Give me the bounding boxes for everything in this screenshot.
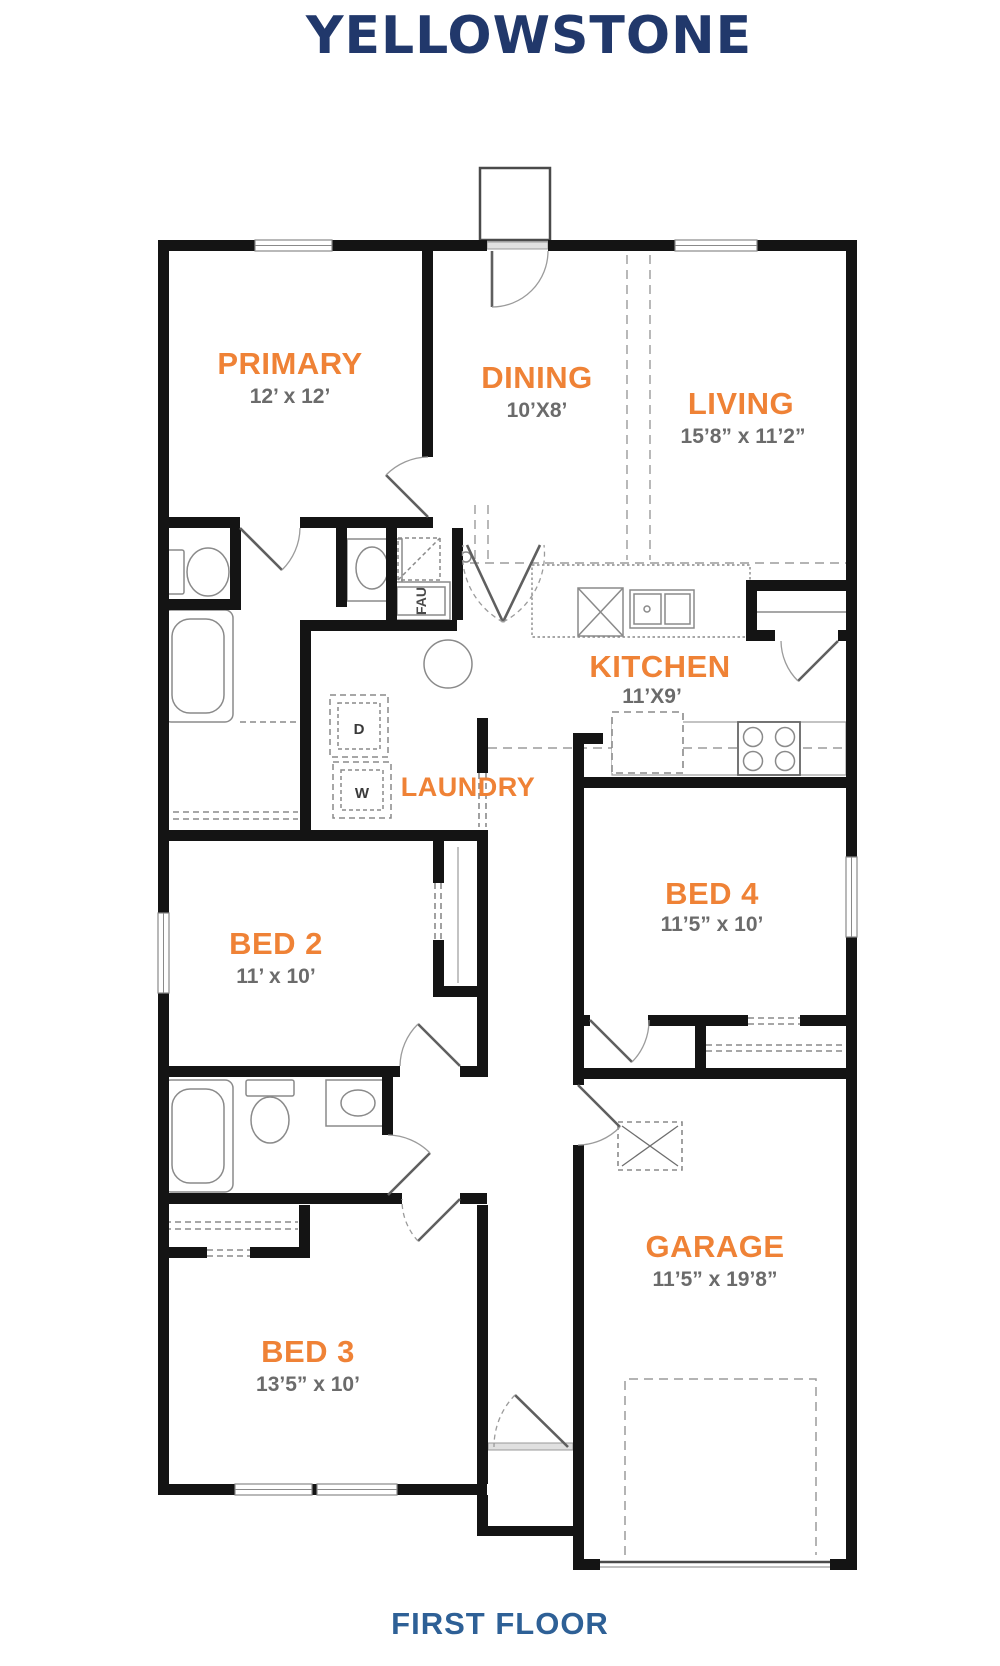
bath2-tub-icon [163,1080,233,1192]
primary-window [255,240,332,251]
bed2-door [400,1024,460,1066]
fau-label: FAU [413,587,429,615]
kitchen-counter-stove-fridge [612,712,846,775]
bath2-toilet-icon [246,1080,294,1143]
kitchen-island-sink-icon [532,565,750,637]
svg-text:11’X9’: 11’X9’ [622,685,682,708]
bed4-door [590,1020,649,1062]
svg-text:PRIMARY: PRIMARY [217,346,362,381]
bed2-closet-slider [435,883,441,940]
svg-text:11’5” x 19’8”: 11’5” x 19’8” [653,1268,778,1291]
svg-text:15’8” x 11’2”: 15’8” x 11’2” [681,425,806,448]
floor-plan-drawing: FAU D W [0,0,1000,1666]
svg-text:KITCHEN: KITCHEN [589,649,730,684]
svg-text:11’5” x 10’: 11’5” x 10’ [661,913,764,936]
room-label-living: LIVING 15’8” x 11’2” [681,386,806,448]
room-label-kitchen: KITCHEN 11’X9’ [589,649,730,708]
garage-entry-door [578,1085,620,1145]
svg-text:11’ x 10’: 11’ x 10’ [236,965,315,988]
svg-text:BED 4: BED 4 [665,876,759,911]
room-label-bed3: BED 3 13’5” x 10’ [256,1334,360,1396]
svg-text:BED 3: BED 3 [261,1334,355,1369]
svg-text:DINING: DINING [481,360,593,395]
fridge-icon [612,712,683,773]
primary-door [386,457,428,517]
bed2-window [158,913,169,993]
primary-bath-tub-icon [163,610,233,722]
bed3-closet-slider [207,1250,250,1256]
room-label-primary: PRIMARY 12’ x 12’ [217,346,362,408]
garage-platform-icon [618,1122,682,1170]
svg-text:GARAGE: GARAGE [645,1229,784,1264]
dryer-label: D [354,721,365,738]
dryer-icon: D [330,695,388,757]
svg-text:BED 2: BED 2 [229,926,323,961]
primary-closet-rod [163,722,300,819]
svg-text:12’ x 12’: 12’ x 12’ [250,385,331,408]
room-label-laundry: LAUNDRY [401,772,536,802]
svg-text:LIVING: LIVING [688,386,794,421]
stove-icon [738,722,800,775]
back-door-threshold [488,1443,573,1450]
front-door [492,251,548,307]
svg-text:10’X8’: 10’X8’ [507,399,568,422]
bed3-window-right [317,1484,397,1495]
front-porch [480,168,550,249]
floor-label: FIRST FLOOR [0,1606,1000,1642]
back-door [494,1395,568,1447]
bed3-window-left [235,1484,312,1495]
room-label-bed4: BED 4 11’5” x 10’ [661,876,764,936]
primary-bath-door [240,528,300,570]
bed4-closet-slider [748,1018,800,1024]
room-label-dining: DINING 10’X8’ [481,360,593,422]
water-heater-icon [424,640,472,688]
room-label-bed2: BED 2 11’ x 10’ [229,926,323,988]
garage-door-zone [600,1379,830,1567]
bed4-closet-shelf [706,1045,846,1051]
washer-label: W [355,785,370,802]
bed3-closet-shelf [165,1222,298,1229]
living-window [675,240,757,251]
room-label-garage: GARAGE 11’5” x 19’8” [645,1229,784,1291]
svg-text:13’5” x 10’: 13’5” x 10’ [256,1373,360,1396]
svg-text:LAUNDRY: LAUNDRY [401,772,536,802]
primary-bath-toilet-icon [166,548,229,596]
bed3-door [402,1199,460,1241]
bed4-window [846,857,857,937]
washer-icon: W [333,762,391,818]
floor-plan-page: YELLOWSTONE [0,0,1000,1666]
pantry-door [781,641,838,681]
bath2-door [388,1135,430,1195]
